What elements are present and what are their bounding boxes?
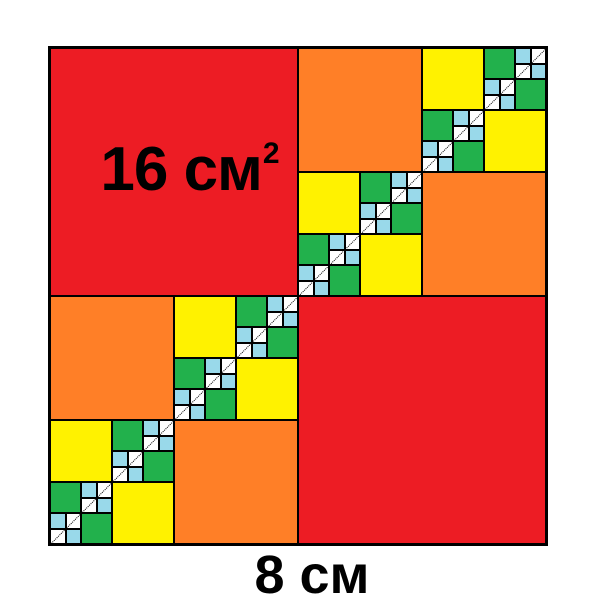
white-square [484, 95, 500, 111]
white-square [128, 451, 144, 467]
light-blue-square [159, 436, 175, 452]
light-blue-square [81, 482, 97, 498]
white-square [236, 343, 252, 359]
light-blue-square [422, 141, 438, 157]
white-square [267, 312, 283, 328]
yellow-square [236, 358, 298, 420]
light-blue-square [438, 157, 454, 173]
white-square [314, 265, 330, 281]
white-square [360, 219, 376, 235]
green-square [484, 48, 515, 79]
white-square [407, 172, 423, 188]
light-blue-square [50, 513, 66, 529]
light-blue-square [190, 405, 206, 421]
green-square [422, 110, 453, 141]
white-square [469, 110, 485, 126]
light-blue-square [360, 203, 376, 219]
orange-square [174, 420, 298, 544]
green-square [112, 420, 143, 451]
yellow-square [484, 110, 546, 172]
light-blue-square [453, 110, 469, 126]
red-square [298, 296, 546, 544]
white-square [112, 467, 128, 483]
light-blue-square [376, 219, 392, 235]
green-square [360, 172, 391, 203]
orange-square [298, 48, 422, 172]
white-square [205, 374, 221, 390]
white-square [81, 498, 97, 514]
white-square [329, 250, 345, 266]
white-square [515, 64, 531, 80]
light-blue-square [252, 343, 268, 359]
light-blue-square [174, 389, 190, 405]
white-square [159, 420, 175, 436]
light-blue-square [221, 374, 237, 390]
light-blue-square [143, 420, 159, 436]
light-blue-square [66, 529, 82, 545]
light-blue-square [484, 79, 500, 95]
white-square [143, 436, 159, 452]
light-blue-square [314, 281, 330, 297]
white-square [438, 141, 454, 157]
white-square [453, 126, 469, 142]
white-square [376, 203, 392, 219]
white-square [422, 157, 438, 173]
light-blue-square [329, 234, 345, 250]
green-square [50, 482, 81, 513]
light-blue-square [500, 95, 516, 111]
side-length-label: 8 см [254, 548, 369, 600]
green-square [329, 265, 360, 296]
white-square [298, 281, 314, 297]
area-label: 16 см2 [100, 139, 279, 201]
area-label-superscript: 2 [263, 137, 280, 170]
area-label-text: 16 см [100, 135, 262, 204]
yellow-square [174, 296, 236, 358]
white-square [50, 529, 66, 545]
yellow-square [422, 48, 484, 110]
green-square [515, 79, 546, 110]
green-square [81, 513, 112, 544]
white-square [221, 358, 237, 374]
light-blue-square [345, 250, 361, 266]
white-square [97, 482, 113, 498]
white-square [174, 405, 190, 421]
green-square [174, 358, 205, 389]
white-square [66, 513, 82, 529]
light-blue-square [531, 64, 547, 80]
light-blue-square [407, 188, 423, 204]
green-square [143, 451, 174, 482]
green-square [236, 296, 267, 327]
white-square [283, 296, 299, 312]
light-blue-square [236, 327, 252, 343]
light-blue-square [469, 126, 485, 142]
yellow-square [50, 420, 112, 482]
green-square [298, 234, 329, 265]
white-square [190, 389, 206, 405]
green-square [391, 203, 422, 234]
light-blue-square [112, 451, 128, 467]
light-blue-square [283, 312, 299, 328]
green-square [205, 389, 236, 420]
orange-square [50, 296, 174, 420]
light-blue-square [128, 467, 144, 483]
yellow-square [298, 172, 360, 234]
fractal-square-figure: 16 см2 [48, 46, 548, 546]
white-square [391, 188, 407, 204]
green-square [267, 327, 298, 358]
orange-square [422, 172, 546, 296]
diagram-canvas: 16 см2 8 см [0, 0, 600, 600]
white-square [345, 234, 361, 250]
green-square [453, 141, 484, 172]
light-blue-square [97, 498, 113, 514]
light-blue-square [515, 48, 531, 64]
light-blue-square [391, 172, 407, 188]
light-blue-square [298, 265, 314, 281]
yellow-square [360, 234, 422, 296]
light-blue-square [267, 296, 283, 312]
white-square [531, 48, 547, 64]
yellow-square [112, 482, 174, 544]
light-blue-square [205, 358, 221, 374]
white-square [252, 327, 268, 343]
white-square [500, 79, 516, 95]
